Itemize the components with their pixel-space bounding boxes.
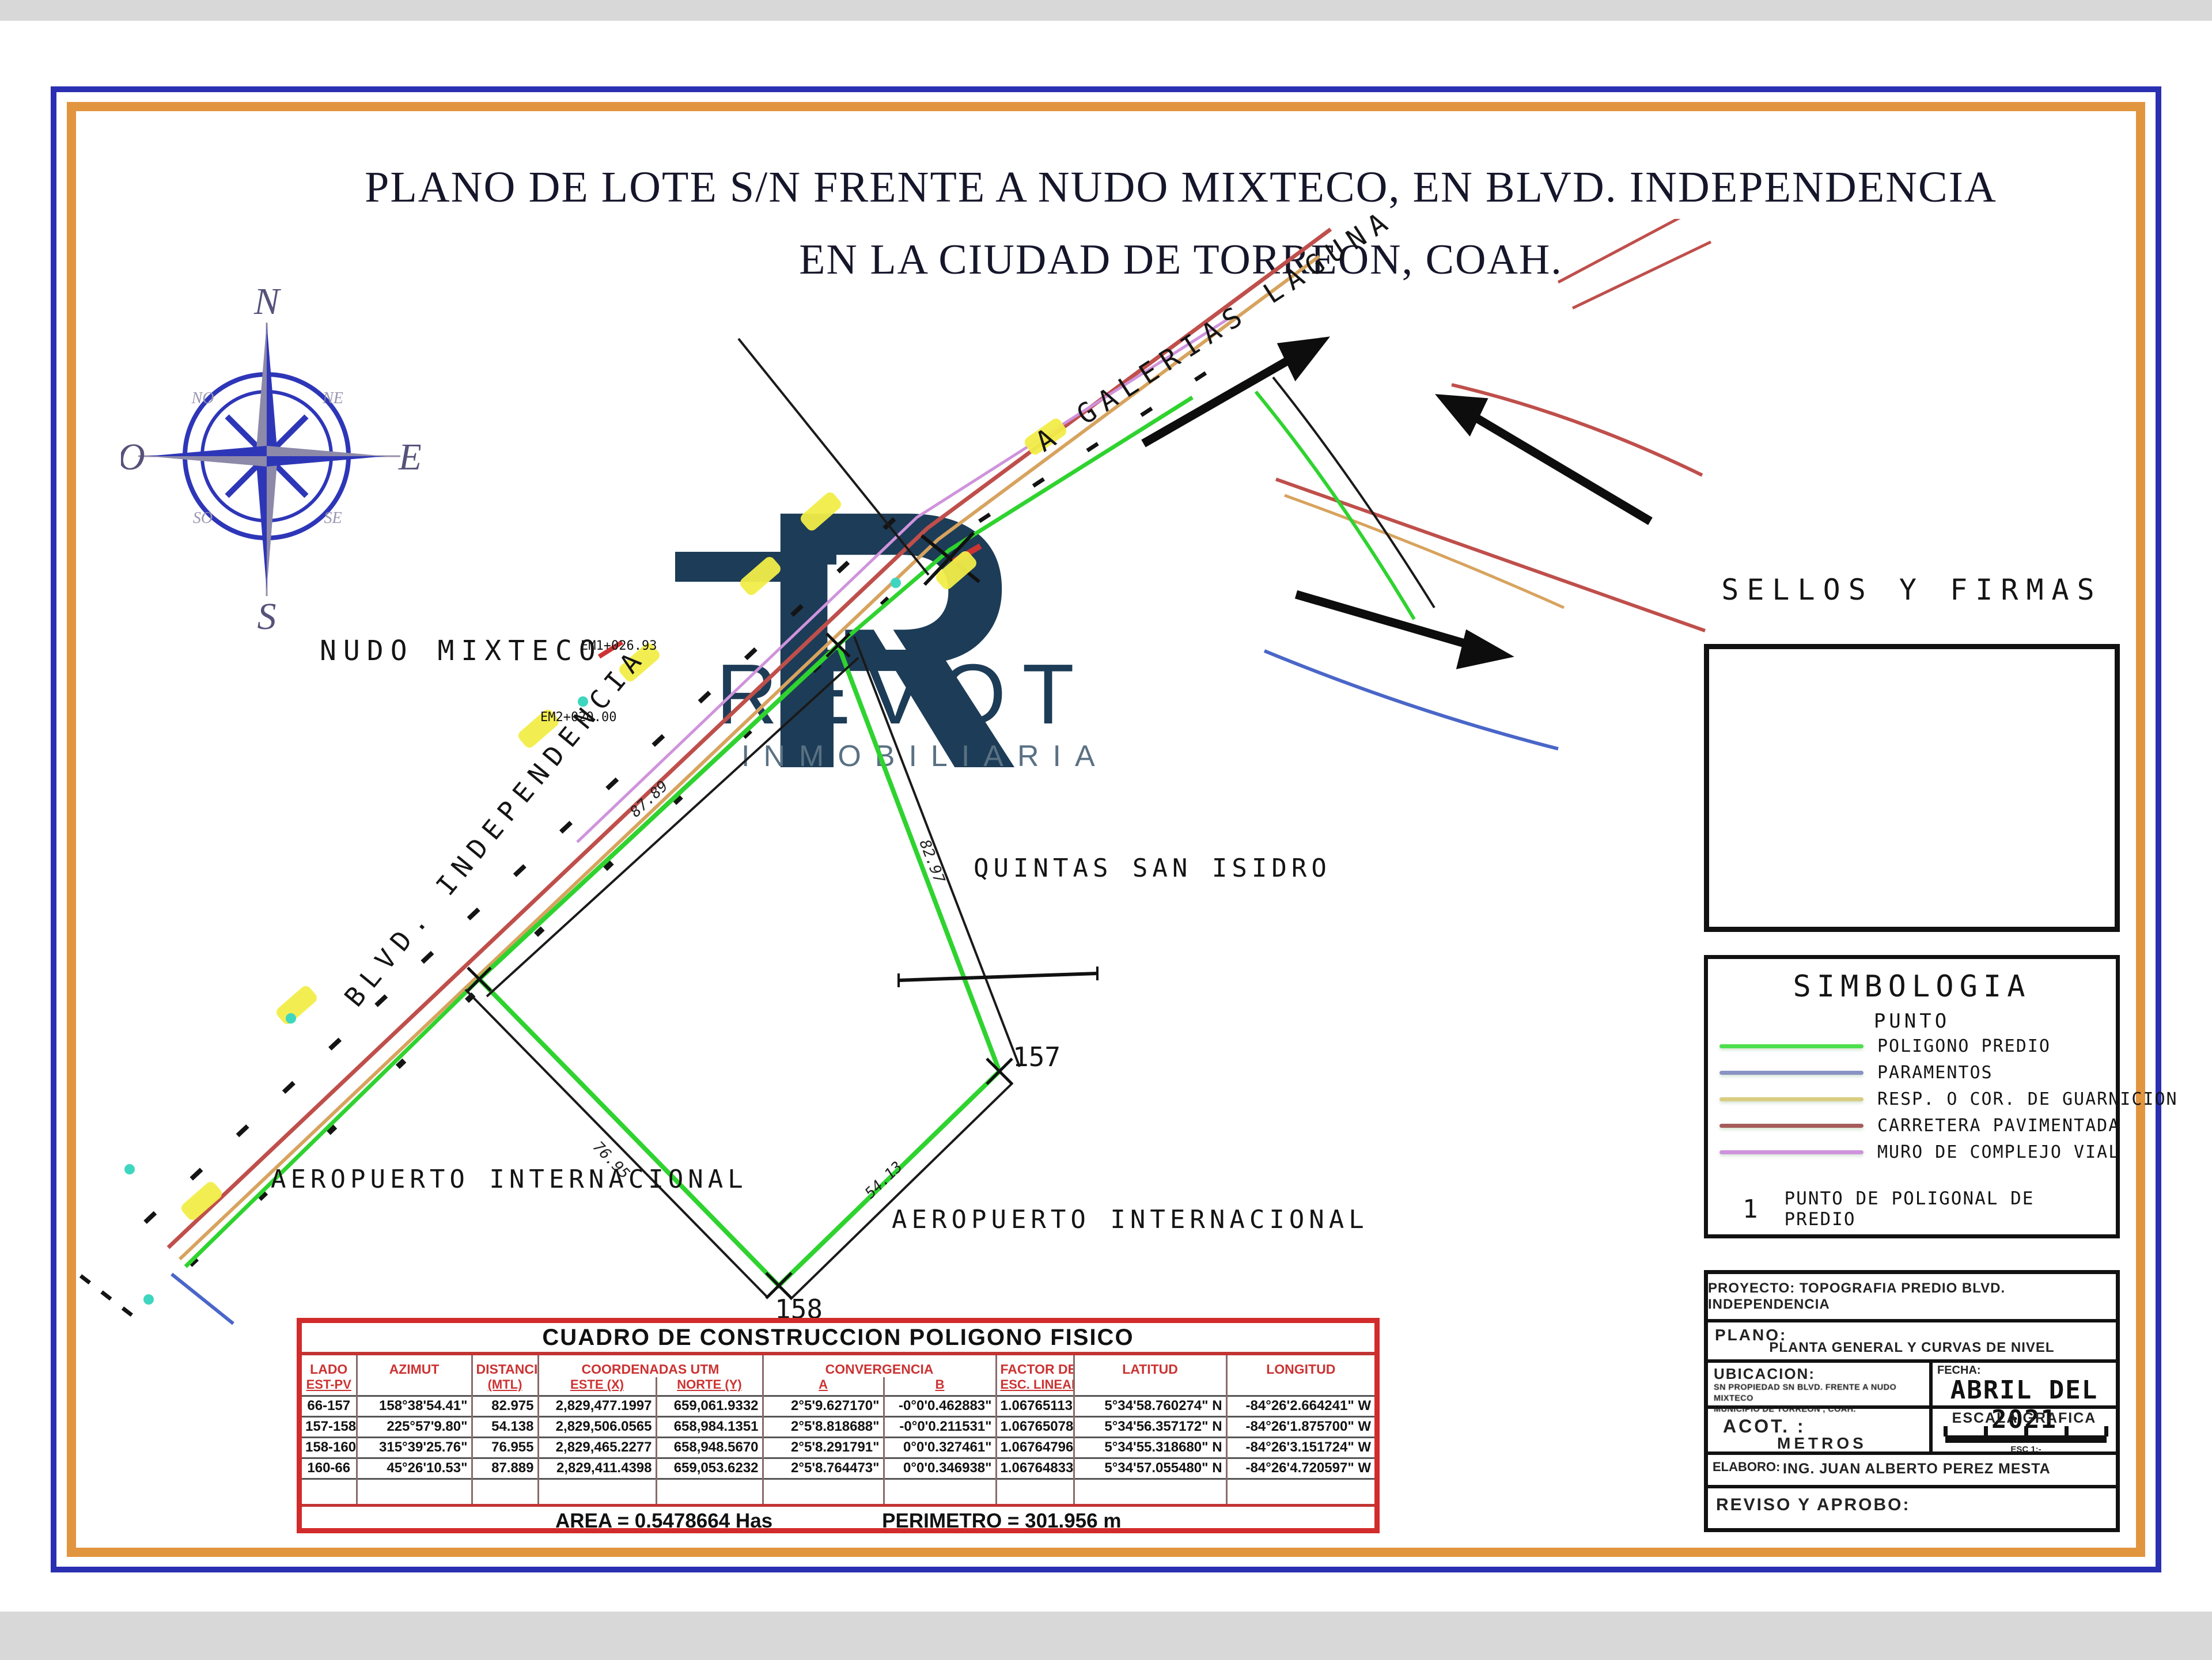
cell-norte: 658,984.1351 [656,1416,763,1437]
vertex-crosses [468,634,1012,1298]
titleblock-ubicacion-fecha: UBICACION: SN PROPIEDAD SN BLVD. FRENTE … [1708,1363,2116,1409]
gutter-bottom [0,1612,2212,1660]
legend-label: PARAMENTOS [1877,1063,1993,1083]
legend-point-symbol: 1 [1743,1195,1758,1224]
construction-table-title: CUADRO DE CONSTRUCCION POLIGONO FISICO [302,1323,1374,1355]
legend-swatch-guarnicion [1719,1097,1863,1101]
cell-dist: 54.138 [472,1416,538,1437]
cell-este: 2,829,477.1997 [538,1396,656,1416]
legend-point-row: 1 PUNTO DE POLIGONAL DE PREDIO [1743,1188,2116,1230]
col-factor: FACTOR DE [996,1355,1074,1377]
edge-distance-labels: 82.97 54.13 76.95 87.89 [589,778,948,1202]
cell-conv-a: 2°5'8.291791" [763,1437,884,1458]
table-row: 66-157 158°38'54.41" 82.975 2,829,477.19… [302,1396,1374,1416]
legend-item: CARRETERA PAVIMENTADA [1719,1112,2116,1139]
cell-dist: 82.975 [472,1396,538,1416]
cell-lat: 5°34'58.760274" N [1074,1396,1226,1416]
header-row-1: LADO AZIMUT DISTANCIA COORDENADAS UTM CO… [302,1355,1374,1377]
label-quintas-san-isidro: QUINTAS SAN ISIDRO [974,854,1331,883]
scale-bar: ESC 1:- [1940,1426,2112,1454]
col-azimut: AZIMUT [357,1355,472,1377]
plano-value: PLANTA GENERAL Y CURVAS DE NIVEL [1708,1340,2116,1356]
cell-azimut: 45°26'10.53" [357,1458,472,1479]
sellos-title: SELLOS Y FIRMAS [1704,573,2120,607]
cell-conv-a: 2°5'8.764473" [763,1458,884,1479]
col-este: ESTE (X) [538,1377,656,1396]
cell-lat: 5°34'56.357172" N [1074,1416,1226,1437]
cell-azimut: 225°57'9.80" [357,1416,472,1437]
ramp-survey-line [1273,377,1434,608]
chevron-red-2 [1573,242,1711,308]
simbologia-subtitle: PUNTO [1708,1010,2116,1033]
label-aeropuerto-right: AEROPUERTO INTERNACIONAL [892,1205,1369,1234]
table-row: 160-66 45°26'10.53" 87.889 2,829,411.439… [302,1458,1374,1479]
col-distancia: DISTANCIA [472,1355,538,1377]
legend-item: PARAMENTOS [1719,1059,2116,1086]
col-longitud-sub [1226,1377,1374,1396]
area-value: AREA = 0.5478664 Has [555,1510,772,1533]
cell-azimut: 158°38'54.41" [357,1396,472,1416]
cell-lon: -84°26'4.720597" W [1226,1458,1374,1479]
legend-item: RESP. O COR. DE GUARNICION [1719,1086,2116,1112]
cell-dist: 87.889 [472,1458,538,1479]
titleblock-proyecto: PROYECTO: TOPOGRAFIA PREDIO BLVD. INDEPE… [1708,1274,2116,1322]
titleblock-reviso: REVISO Y APROBO: [1708,1488,2116,1529]
legend-label: CARRETERA PAVIMENTADA [1877,1116,2120,1136]
cell-lado: 160-66 [302,1458,357,1479]
cell-este: 2,829,411.4398 [538,1458,656,1479]
escala-cell: ESCALA GRAFICA ESC 1:- [1933,1409,2116,1451]
col-conv-b: B [884,1377,996,1396]
label-aeropuerto-left: AEROPUERTO INTERNACIONAL [271,1165,748,1194]
reviso-label: REVISO Y APROBO: [1716,1495,1911,1515]
chevron-red-1 [1558,219,1708,282]
ubicacion-label: UBICACION: [1714,1365,1815,1383]
cell-norte: 659,061.9332 [656,1396,763,1416]
construction-grid: LADO AZIMUT DISTANCIA COORDENADAS UTM CO… [302,1355,1374,1504]
dist-157-158: 54.13 [862,1158,906,1202]
cell-este: 2,829,465.2277 [538,1437,656,1458]
label-point-157: 157 [1013,1041,1060,1072]
col-convergencia: CONVERGENCIA [763,1355,996,1377]
construction-table: CUADRO DE CONSTRUCCION POLIGONO FISICO L… [297,1318,1380,1533]
simbologia-box: SIMBOLOGIA PUNTO POLIGONO PREDIO PARAMEN… [1704,955,2120,1238]
cell-lat: 5°34'57.055480" N [1074,1458,1226,1479]
road-tick-marks-1 [145,507,907,1222]
elaboro-label: ELABORO: [1713,1460,1780,1475]
ubicacion-line-1: SN PROPIEDAD SN BLVD. FRENTE A NUDO MIXT… [1714,1382,1929,1404]
cell-lado: 158-160 [302,1437,357,1458]
elaboro-value: ING. JUAN ALBERTO PEREZ MESTA [1783,1461,2051,1477]
label-nudo-mixteco: NUDO MIXTECO [320,635,603,667]
header-row-2: EST-PV (MTL) ESTE (X) NORTE (Y) A B ESC.… [302,1377,1374,1396]
col-lado-sub: EST-PV [302,1377,357,1396]
title-block: PROYECTO: TOPOGRAFIA PREDIO BLVD. INDEPE… [1704,1270,2120,1532]
survey-offset-lines [465,339,1020,1299]
legend-label: MURO DE COMPLEJO VIAL [1877,1142,2120,1162]
title-line-1: PLANO DE LOTE S/N FRENTE A NUDO MIXTECO,… [173,162,2189,213]
cell-lado: 66-157 [302,1396,357,1416]
cell-factor: 1.06765113 [996,1396,1074,1416]
cell-factor: 1.06764833 [996,1458,1074,1479]
cell-azimut: 315°39'25.76" [357,1437,472,1458]
station-highlights [179,416,1069,1222]
legend-label: POLIGONO PREDIO [1877,1036,2051,1056]
plan-sheet: PLANO DE LOTE S/N FRENTE A NUDO MIXTECO,… [0,0,2212,1660]
ubicacion-cell: UBICACION: SN PROPIEDAD SN BLVD. FRENTE … [1708,1363,1933,1405]
acot-cell: ACOT. : METROS [1708,1409,1933,1451]
cell-lon: -84°26'1.875700" W [1226,1416,1374,1437]
legend-swatch-paramentos [1719,1071,1863,1075]
cell-conv-a: 2°5'9.627170" [763,1396,884,1416]
cell-conv-b: 0°0'0.346938" [884,1458,996,1479]
col-lado: LADO [302,1355,357,1377]
simbologia-title: SIMBOLOGIA [1708,969,2116,1004]
col-conv-a: A [763,1377,884,1396]
cell-conv-b: -0°0'0.462883" [884,1396,996,1416]
direction-arrows [1143,342,1650,664]
cell-lado: 157-158 [302,1416,357,1437]
cell-conv-b: 0°0'0.327461" [884,1437,996,1458]
perimetro-value: PERIMETRO = 301.956 m [882,1510,1121,1533]
legend-swatch-muro [1719,1150,1863,1154]
scale-caption: ESC 1:- [2010,1445,2041,1454]
ramp-green-edge [1256,392,1414,619]
cell-lon: -84°26'3.151724" W [1226,1437,1374,1458]
acot-value: METROS [1777,1434,1867,1453]
cell-conv-b: -0°0'0.211531" [884,1416,996,1437]
cell-lat: 5°34'55.318680" N [1074,1437,1226,1458]
table-row: 157-158 225°57'9.80" 54.138 2,829,506.05… [302,1416,1374,1437]
col-latitud-sub [1074,1377,1226,1396]
col-longitud: LONGITUD [1226,1355,1374,1377]
paramentos-curve [1264,651,1558,749]
cell-este: 2,829,506.0565 [538,1416,656,1437]
col-factor-sub: ESC. LINEAL [996,1377,1074,1396]
col-distancia-sub: (MTL) [472,1377,538,1396]
col-coordenadas: COORDENADAS UTM [538,1355,763,1377]
cell-norte: 659,053.6232 [656,1458,763,1479]
road-end-ticks [81,1276,135,1318]
col-norte: NORTE (Y) [656,1377,763,1396]
legend-swatch-carretera [1719,1124,1863,1128]
fecha-cell: FECHA: ABRIL DEL 2021 [1933,1363,2116,1405]
paramentos-segment [172,1274,233,1324]
col-azimut-sub [357,1377,472,1396]
table-row: 158-160 315°39'25.76" 76.955 2,829,465.2… [302,1437,1374,1458]
col-latitud: LATITUD [1074,1355,1226,1377]
cell-factor: 1.06764796 [996,1437,1074,1458]
escala-label: ESCALA GRAFICA [1933,1410,2116,1427]
cell-lon: -84°26'2.664241" W [1226,1396,1374,1416]
titleblock-elaboro: ELABORO: ING. JUAN ALBERTO PEREZ MESTA [1708,1455,2116,1488]
legend-label: RESP. O COR. DE GUARNICION [1877,1089,2178,1109]
titleblock-plano: PLANO: PLANTA GENERAL Y CURVAS DE NIVEL [1708,1322,2116,1363]
cell-norte: 658,948.5670 [656,1437,763,1458]
poligono-road-edge [185,397,1192,1267]
table-footer: AREA = 0.5478664 Has PERIMETRO = 301.956… [302,1504,1374,1536]
legend-item: MURO DE COMPLEJO VIAL [1719,1139,2116,1165]
cell-conv-a: 2°5'8.818688" [763,1416,884,1437]
legend-point-label: PUNTO DE POLIGONAL DE PREDIO [1785,1188,2116,1230]
legend-swatch-poligono [1719,1044,1863,1048]
titleblock-acot-escala: ACOT. : METROS ESCALA GRAFICA ESC 1:- [1708,1409,2116,1455]
sellos-box [1704,644,2120,932]
legend-item: POLIGONO PREDIO [1719,1033,2116,1059]
dimension-line [899,973,1097,980]
empty-row [302,1479,1374,1504]
cell-dist: 76.955 [472,1437,538,1458]
gutter-top [0,0,2212,21]
cell-factor: 1.06765078 [996,1416,1074,1437]
